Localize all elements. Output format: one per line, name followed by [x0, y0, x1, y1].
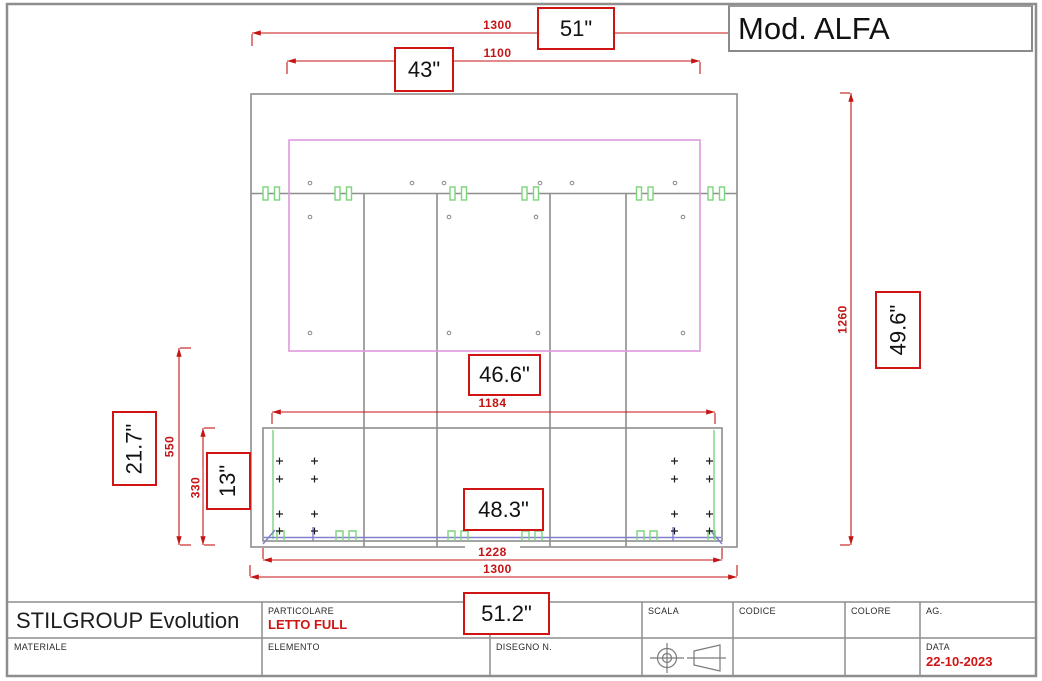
inch-box-49-6: 49.6" — [875, 291, 921, 369]
particolare-label: PARTICOLARE — [268, 606, 334, 616]
codice-label: CODICE — [739, 606, 776, 616]
model-title: Mod. ALFA — [738, 11, 890, 47]
inch-value-21-7: 21.7" — [122, 423, 148, 474]
base-foot-tabs — [277, 531, 715, 541]
dim-label-330-left: 330 — [190, 468, 203, 508]
inch-box-46-6: 46.6" — [468, 354, 541, 396]
elemento-label: ELEMENTO — [268, 642, 320, 652]
inch-value-46-6: 46.6" — [479, 362, 530, 388]
dim-label-1228-bottom: 1228 — [465, 546, 520, 559]
inch-value-43: 43" — [408, 57, 440, 83]
data-value: 22-10-2023 — [926, 654, 993, 669]
model-title-box: Mod. ALFA — [728, 5, 1033, 52]
colore-label: COLORE — [851, 606, 891, 616]
inch-box-51-2: 51.2" — [463, 592, 550, 635]
inch-value-13: 13" — [216, 465, 242, 497]
dim-label-1100-top: 1100 — [470, 47, 525, 60]
inch-box-48-3: 48.3" — [463, 488, 544, 531]
inch-box-13: 13" — [206, 452, 251, 510]
projection-symbol-icon — [650, 643, 726, 673]
inch-box-43: 43" — [394, 47, 454, 92]
inch-value-49-6: 49.6" — [885, 305, 911, 356]
dim-label-550-left: 550 — [164, 427, 177, 467]
dim-label-1300-top: 1300 — [470, 19, 525, 32]
inch-box-51: 51" — [537, 7, 615, 50]
ag-label: AG. — [926, 606, 942, 616]
bed-outline — [251, 94, 737, 547]
dim-label-1260-right: 1260 — [837, 300, 850, 340]
inch-value-48-3: 48.3" — [478, 497, 529, 523]
particolare-value: LETTO FULL — [268, 617, 347, 632]
inch-box-21-7: 21.7" — [112, 411, 157, 486]
back-panel-pink-rect — [289, 140, 700, 351]
inch-value-51: 51" — [560, 16, 592, 42]
bed-outer-rect — [251, 94, 737, 547]
scala-label: SCALA — [648, 606, 679, 616]
disegno-label: DISEGNO N. — [496, 642, 552, 652]
data-label: DATA — [926, 642, 950, 652]
company-name: STILGROUP Evolution — [16, 608, 239, 634]
dim-label-1184-mid: 1184 — [465, 397, 520, 410]
inch-value-51-2: 51.2" — [481, 601, 532, 627]
materiale-label: MATERIALE — [14, 642, 67, 652]
cad-sheet: Mod. ALFA 1300 1100 1260 550 330 1184 12… — [0, 0, 1042, 681]
dim-label-1300-bottom: 1300 — [470, 563, 525, 576]
